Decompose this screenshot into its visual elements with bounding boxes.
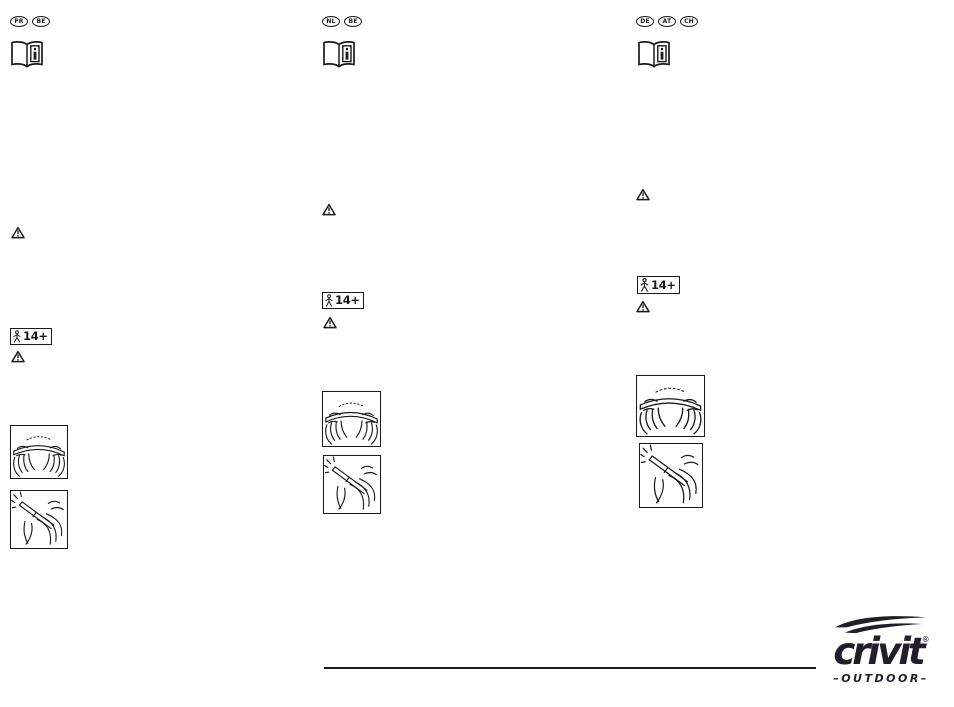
- logo-brand-text: crivit: [833, 630, 922, 673]
- footer-rule: [324, 667, 816, 669]
- read-manual-icon: [636, 40, 672, 70]
- registered-trademark-symbol: ®: [923, 635, 929, 644]
- age-label: 14+: [651, 279, 676, 292]
- language-badge: BE: [32, 16, 50, 27]
- language-badge: AT: [658, 16, 676, 27]
- person-icon: [13, 330, 21, 343]
- age-label: 14+: [23, 330, 48, 343]
- age-14-plus-icon: 14+: [637, 276, 680, 294]
- age-14-plus-icon: 14+: [322, 292, 364, 309]
- hands-flexing-pole-illustration: [636, 375, 705, 437]
- instruction-leaflet-page: FR BE 14+ NL BE 14+ DE AT CH 14+: [0, 0, 954, 707]
- hands-flexing-pole-illustration: [322, 391, 381, 447]
- language-badges-de-at-ch: DE AT CH: [636, 16, 698, 27]
- hands-flexing-pole-illustration: [10, 425, 68, 479]
- warning-triangle-icon: [11, 226, 25, 239]
- age-14-plus-icon: 14+: [10, 328, 52, 345]
- language-badge: DE: [636, 16, 654, 27]
- person-icon: [325, 294, 333, 307]
- language-badge: FR: [10, 16, 28, 27]
- crivit-outdoor-logo: crivit® –OUTDOOR–: [818, 614, 944, 684]
- language-badges-fr-be: FR BE: [10, 16, 50, 27]
- logo-tagline-text: –OUTDOOR–: [818, 673, 944, 684]
- logo-brand: crivit®: [818, 633, 944, 670]
- read-manual-icon: [321, 40, 357, 70]
- hands-connecting-pole-illustration: [323, 455, 381, 514]
- language-badge: NL: [322, 16, 340, 27]
- hands-connecting-pole-illustration: [10, 490, 68, 549]
- language-badge: CH: [680, 16, 698, 27]
- person-icon: [640, 278, 649, 292]
- age-label: 14+: [335, 294, 360, 307]
- hands-connecting-pole-illustration: [639, 443, 703, 508]
- warning-triangle-icon: [11, 350, 25, 363]
- warning-triangle-icon: [636, 300, 650, 313]
- warning-triangle-icon: [323, 316, 337, 329]
- language-badges-nl-be: NL BE: [322, 16, 362, 27]
- read-manual-icon: [9, 40, 45, 70]
- warning-triangle-icon: [636, 188, 650, 201]
- warning-triangle-icon: [322, 203, 336, 216]
- language-badge: BE: [344, 16, 362, 27]
